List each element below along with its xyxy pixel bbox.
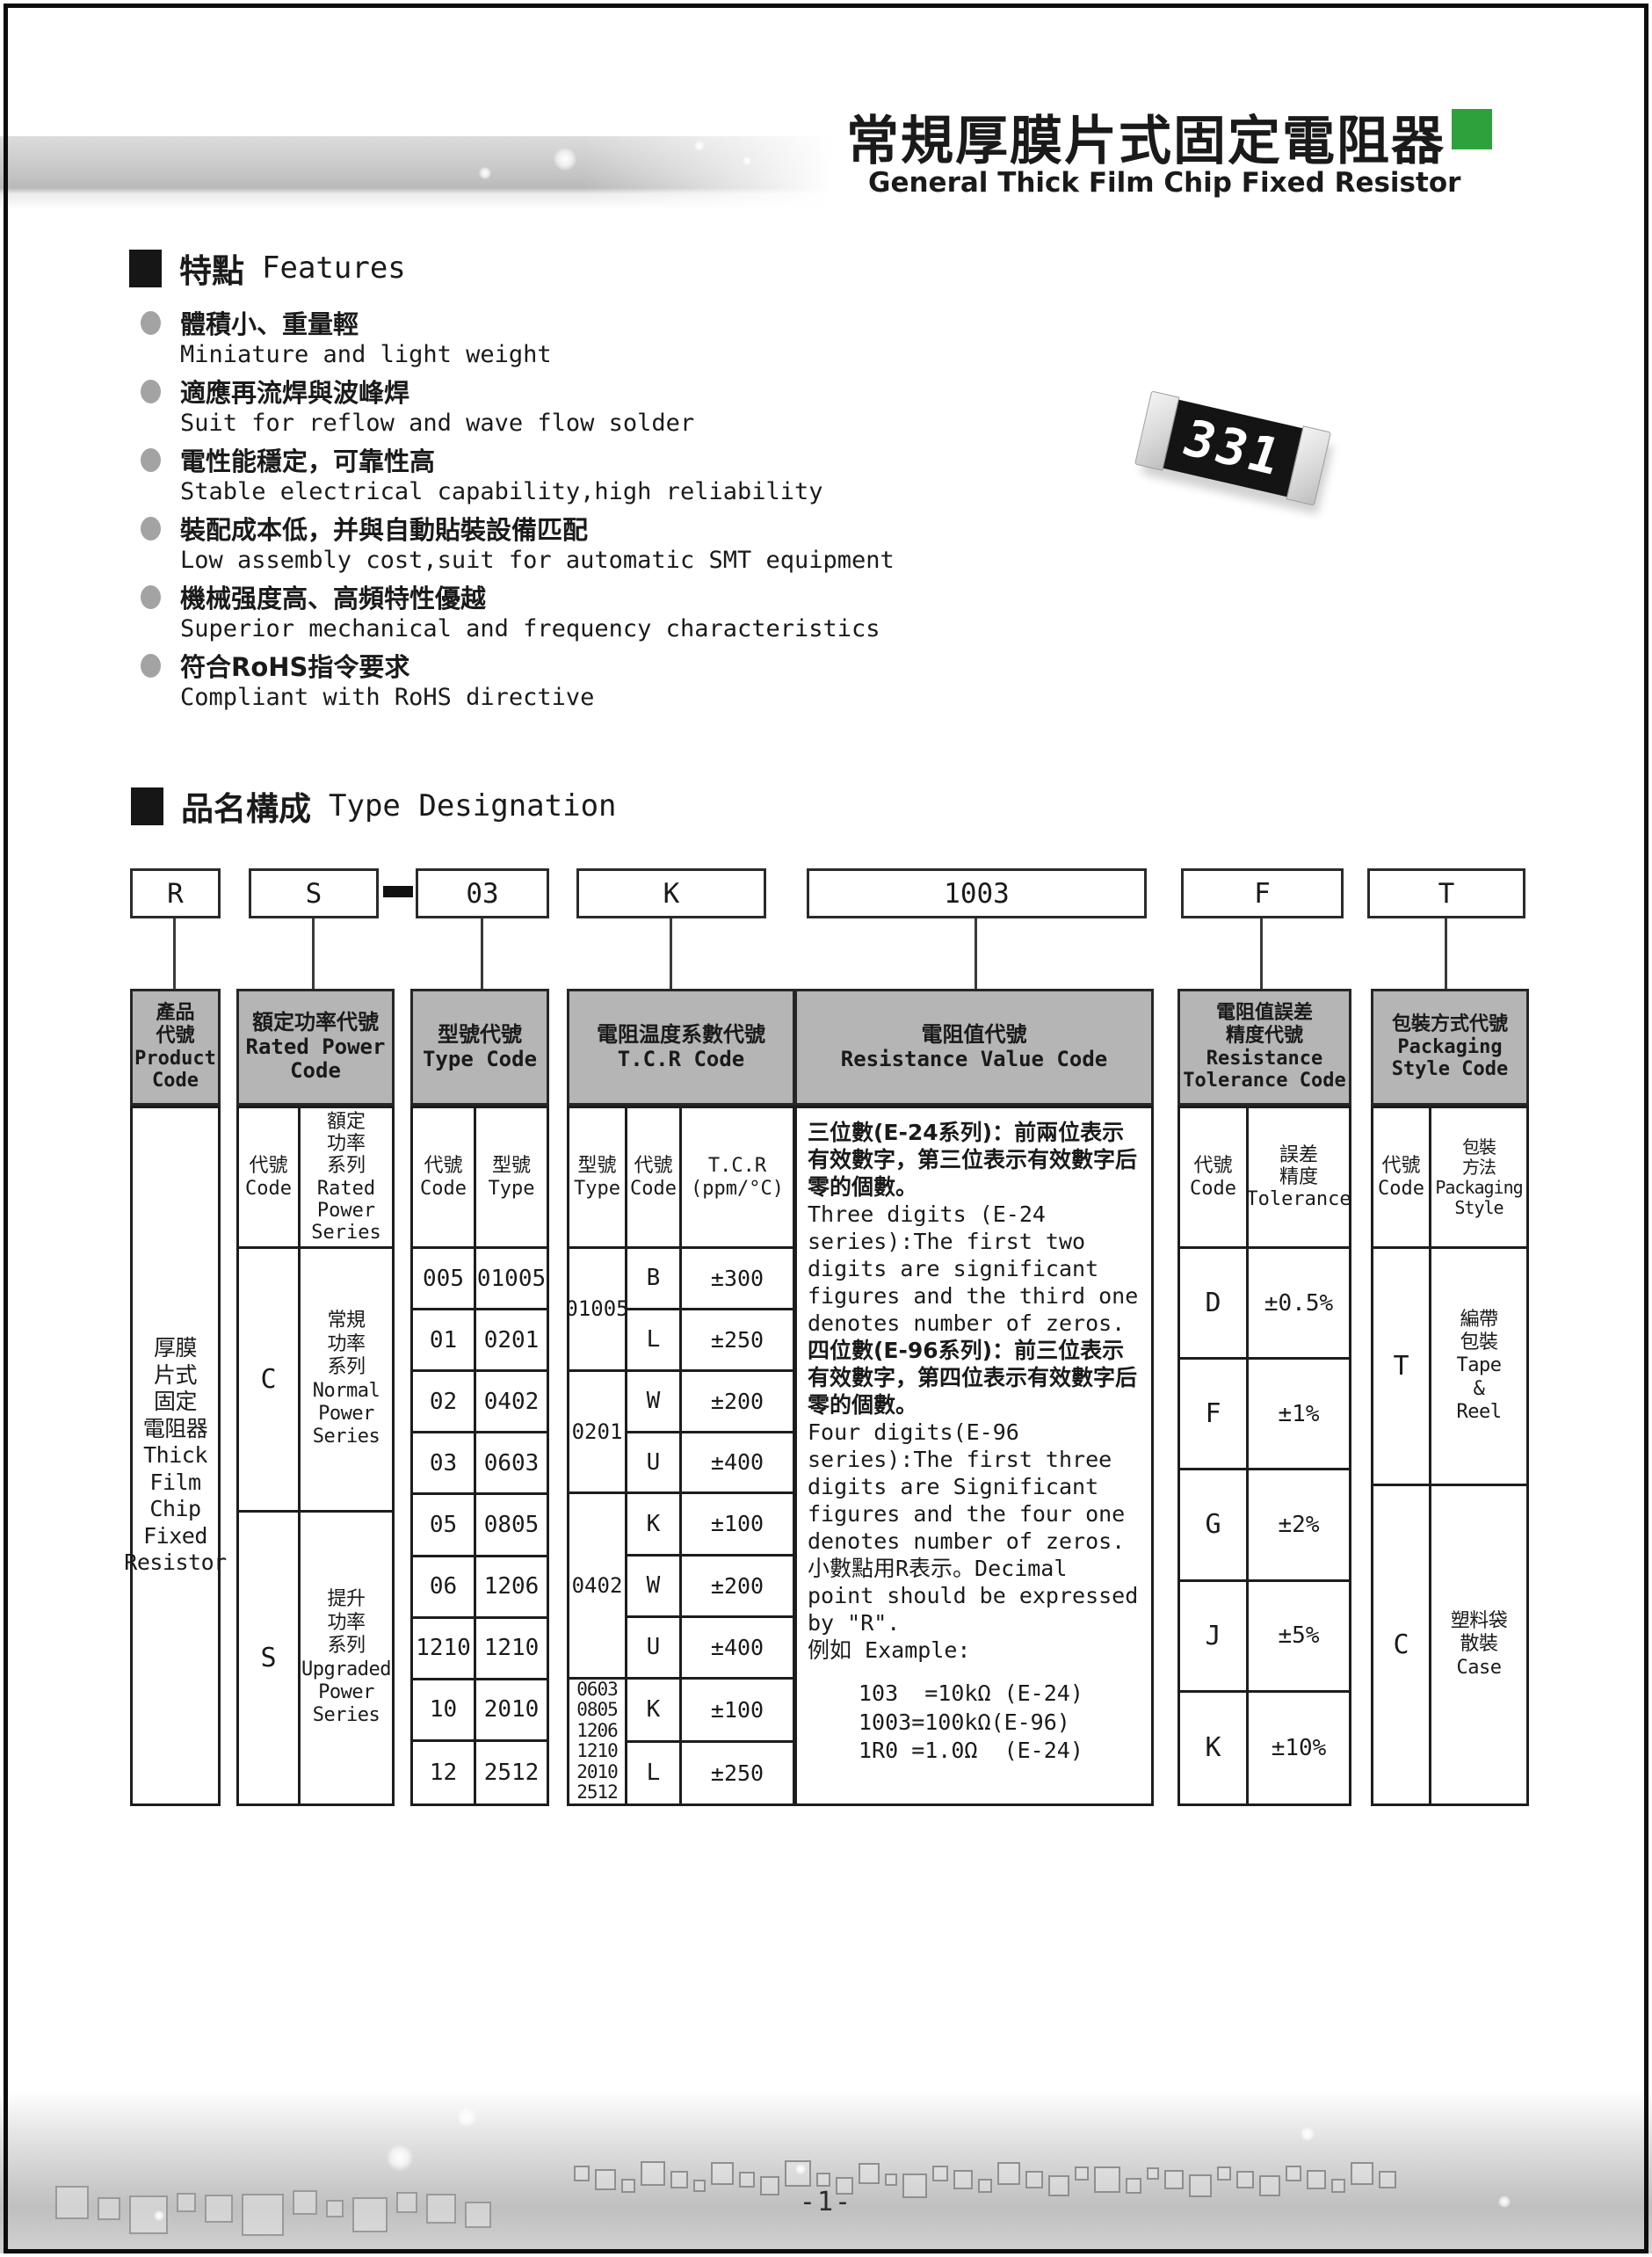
column-header-power: 額定功率代號 Rated Power Code (236, 989, 395, 1106)
deco-square (1217, 2166, 1231, 2181)
feature-en: Stable electrical capability,high reliab… (180, 478, 823, 505)
tolerance-value-cell: ±1% (1249, 1360, 1349, 1470)
tcr-type-cell: 0402 (569, 1494, 627, 1677)
deco-square (1025, 2171, 1043, 2188)
value-paragraph: 三位數(E-24系列)：前兩位表示有效數字，第三位表示有效數字后零的個數。 (808, 1119, 1144, 1201)
feature-en: Compliant with RoHS directive (180, 684, 594, 711)
sparkle-decoration (387, 2145, 413, 2171)
feature-en: Miniature and light weight (180, 341, 552, 368)
bullet-icon (141, 380, 161, 403)
tolerance-value-cell: ±2% (1249, 1470, 1349, 1581)
codebox-value: 1003 (807, 868, 1147, 918)
connector-line (1260, 918, 1263, 989)
page-number: -1- (0, 2187, 1652, 2217)
packaging-style-cell: 塑料袋 散裝 Case (1431, 1486, 1526, 1803)
feature-zh: 體積小、重量輕 (180, 304, 359, 341)
tcr-code-cell: W (627, 1372, 682, 1431)
type-size-cell: 1206 (476, 1557, 547, 1619)
table-tcr: 型號 Type 代號 Code T.C.R (ppm/°C) 01005 B±3… (567, 1106, 795, 1806)
type-size-cell: 0201 (476, 1310, 547, 1372)
bullet-icon (141, 517, 161, 541)
packaging-code-cell: T (1373, 1249, 1431, 1486)
tcr-type-cell: 0603 0805 1206 1210 2010 2512 (569, 1680, 627, 1803)
tcr-value-cell: ±100 (682, 1494, 793, 1553)
tcr-subheader-type: 型號 Type (569, 1108, 627, 1246)
tcr-value-cell: ±250 (682, 1743, 793, 1803)
packaging-style-cell: 編帶 包裝 Tape & Reel (1431, 1249, 1526, 1486)
power-subheader-series: 額定 功率 系列 Rated Power Series (301, 1108, 392, 1249)
tcr-subheader-code: 代號 Code (627, 1108, 682, 1246)
table-type: 代號 Code 型號 Type 005 01005 01 0201 02 040… (410, 1106, 549, 1806)
feature-zh: 適應再流焊與波峰焊 (180, 373, 409, 410)
deco-square (932, 2166, 948, 2181)
table-packaging: 代號 Code 包裝 方法 Packaging Style T 編帶 包裝 Ta… (1371, 1106, 1529, 1806)
column-header-tcr: 電阻温度系數代號 T.C.R Code (567, 989, 795, 1106)
type-code-cell: 005 (413, 1249, 476, 1310)
power-series-cell: 提升 功率 系列 Upgraded Power Series (301, 1513, 392, 1803)
type-code-cell: 10 (413, 1680, 476, 1742)
bullet-icon (141, 585, 161, 609)
type-code-cell: 01 (413, 1310, 476, 1372)
power-series-cell: 常規 功率 系列 Normal Power Series (301, 1249, 392, 1513)
deco-square (711, 2162, 734, 2185)
chip-marking: 331 (1134, 395, 1333, 502)
feature-zh: 裝配成本低，并與自動貼裝設備匹配 (180, 510, 588, 547)
packaging-subheader-style: 包裝 方法 Packaging Style (1431, 1108, 1526, 1249)
page-title-zh: 常規厚膜片式固定電阻器 (846, 98, 1445, 175)
column-header-type: 型號代號 Type Code (410, 989, 549, 1106)
type-code-cell: 06 (413, 1557, 476, 1619)
deco-square (574, 2166, 590, 2181)
sparkle-decoration (795, 2164, 806, 2174)
codebox-tcr: K (576, 868, 766, 918)
deco-square (670, 2171, 688, 2188)
column-header-packaging: 包裝方式代號 Packaging Style Code (1371, 989, 1529, 1106)
type-designation-heading-en: Type Designation (329, 788, 617, 824)
tolerance-code-cell: F (1180, 1360, 1249, 1470)
features-heading-zh: 特點 (179, 244, 244, 292)
type-code-cell: 02 (413, 1372, 476, 1433)
deco-square (1379, 2171, 1396, 2188)
power-subheader-code: 代號 Code (239, 1108, 301, 1249)
product-description-cell: 厚膜 片式 固定 電阻器 Thick Film Chip Fixed Resis… (133, 1108, 218, 1803)
codebox-packaging: T (1367, 868, 1525, 918)
section-marker-square (131, 787, 163, 825)
bullet-icon (141, 311, 161, 335)
tcr-value-cell: ±400 (682, 1433, 793, 1492)
header-gradient-band-fade (0, 136, 833, 210)
deco-square (739, 2172, 755, 2188)
feature-zh: 電性能穩定，可靠性高 (180, 441, 435, 478)
table-tolerance: 代號 Code 誤差 精度 Tolerance D ±0.5% F ±1% G … (1177, 1106, 1351, 1806)
brand-green-square (1452, 109, 1492, 149)
bullet-icon (141, 654, 161, 678)
tcr-code-cell: K (627, 1680, 682, 1740)
type-subheader-code: 代號 Code (413, 1108, 476, 1249)
type-subheader-type: 型號 Type (476, 1108, 547, 1249)
type-size-cell: 2010 (476, 1680, 547, 1742)
power-code-cell: C (239, 1249, 301, 1513)
feature-zh: 機械强度高、高頻特性優越 (180, 578, 486, 615)
tcr-group: 01005 B±300 L±250 (569, 1249, 793, 1372)
sparkle-decoration (1301, 2127, 1315, 2141)
tcr-code-cell: B (627, 1249, 682, 1308)
tolerance-code-cell: K (1180, 1693, 1249, 1803)
value-paragraph: Four digits(E-96 series):The first three… (808, 1419, 1144, 1555)
connector-line (670, 918, 672, 989)
tcr-code-cell: L (627, 1743, 682, 1803)
type-size-cell: 0805 (476, 1495, 547, 1557)
value-paragraph: 小數點用R表示。Decimal point should be expresse… (808, 1555, 1144, 1637)
feature-en: Low assembly cost,suit for automatic SMT… (180, 547, 895, 574)
deco-square (1351, 2162, 1373, 2185)
feature-item: 體積小、重量輕 (141, 304, 359, 341)
tcr-value-cell: ±200 (682, 1372, 793, 1431)
type-size-cell: 1210 (476, 1619, 547, 1680)
column-header-product: 產品 代號 Product Code (130, 989, 221, 1106)
codebox-dash (383, 886, 413, 897)
tcr-type-cell: 01005 (569, 1249, 627, 1369)
sparkle-decoration (554, 148, 576, 171)
connector-line (975, 918, 977, 989)
tcr-value-cell: ±400 (682, 1618, 793, 1677)
type-size-cell: 2512 (476, 1742, 547, 1803)
sparkle-decoration (694, 141, 705, 151)
deco-square (1075, 2166, 1089, 2181)
type-size-cell: 01005 (476, 1249, 547, 1310)
type-designation-heading: 品名構成 Type Designation (131, 782, 617, 830)
value-paragraph: 例如 Example: (808, 1637, 1144, 1664)
tcr-code-cell: K (627, 1494, 682, 1553)
tolerance-value-cell: ±5% (1249, 1582, 1349, 1693)
connector-line (481, 918, 483, 989)
deco-square (885, 2174, 897, 2186)
feature-en: Suit for reflow and wave flow solder (180, 410, 694, 437)
codebox-product: R (130, 868, 221, 918)
deco-square (641, 2161, 665, 2186)
deco-square (1147, 2167, 1159, 2180)
feature-item: 適應再流焊與波峰焊 (141, 373, 409, 410)
value-paragraph: Three digits (E-24 series):The first two… (808, 1201, 1144, 1337)
codebox-tolerance: F (1181, 868, 1344, 918)
tcr-value-cell: ±100 (682, 1680, 793, 1740)
feature-item: 電性能穩定，可靠性高 (141, 441, 435, 478)
feature-item: 裝配成本低，并與自動貼裝設備匹配 (141, 510, 588, 547)
features-heading-en: Features (262, 250, 406, 286)
deco-square (997, 2162, 1020, 2185)
type-code-cell: 05 (413, 1495, 476, 1557)
value-example: 1R0 =1.0Ω (E-24) (859, 1737, 1144, 1766)
tcr-subheader-value: T.C.R (ppm/°C) (682, 1108, 793, 1246)
column-header-value: 電阻值代號 Resistance Value Code (794, 989, 1154, 1106)
feature-zh: 符合RoHS指令要求 (180, 647, 409, 684)
value-example: 1003=100kΩ(E-96) (859, 1709, 1144, 1738)
codebox-type: 03 (416, 868, 549, 918)
tolerance-subheader-code: 代號 Code (1180, 1108, 1249, 1249)
tcr-code-cell: U (627, 1433, 682, 1492)
value-paragraph: 四位數(E-96系列)：前三位表示有效數字，第四位表示有效數字后零的個數。 (808, 1337, 1144, 1419)
tolerance-value-cell: ±0.5% (1249, 1249, 1349, 1360)
tcr-value-cell: ±200 (682, 1557, 793, 1615)
deco-square (1236, 2171, 1254, 2188)
section-marker-square (129, 250, 162, 287)
connector-line (312, 918, 315, 989)
feature-item: 符合RoHS指令要求 (141, 647, 409, 684)
type-size-cell: 0402 (476, 1372, 547, 1433)
connector-line (1445, 918, 1447, 989)
table-power: 代號 Code 額定 功率 系列 Rated Power Series C 常規… (236, 1106, 395, 1806)
table-product: 厚膜 片式 固定 電阻器 Thick Film Chip Fixed Resis… (130, 1106, 221, 1806)
feature-item: 機械强度高、高頻特性優越 (141, 578, 486, 615)
connector-line (173, 918, 176, 989)
feature-en: Superior mechanical and frequency charac… (180, 615, 880, 642)
codebox-power: S (249, 868, 379, 918)
deco-square (816, 2173, 830, 2187)
deco-square (859, 2163, 880, 2184)
power-code-cell: S (239, 1513, 301, 1803)
resistor-chip-image: 331 (1137, 394, 1330, 503)
tcr-group: 0201 W±200 U±400 (569, 1372, 793, 1495)
tcr-code-cell: L (627, 1310, 682, 1369)
tcr-code-cell: W (627, 1557, 682, 1615)
deco-square (1286, 2166, 1301, 2181)
tcr-group: 0402 K±100 W±200 U±400 (569, 1494, 793, 1680)
tolerance-code-cell: D (1180, 1249, 1249, 1360)
page-title-en: General Thick Film Chip Fixed Resistor (868, 167, 1460, 199)
table-value: 三位數(E-24系列)：前兩位表示有效數字，第三位表示有效數字后零的個數。 Th… (794, 1106, 1154, 1806)
type-size-cell: 0603 (476, 1433, 547, 1495)
tolerance-code-cell: J (1180, 1582, 1249, 1693)
tcr-type-cell: 0201 (569, 1372, 627, 1492)
value-example: 103 =10kΩ (E-24) (859, 1680, 1144, 1709)
datasheet-page: { "page": { "title_zh": "常規厚膜片式固定電阻器", "… (0, 0, 1652, 2257)
tcr-value-cell: ±250 (682, 1310, 793, 1369)
tolerance-value-cell: ±10% (1249, 1693, 1349, 1803)
type-code-cell: 03 (413, 1433, 476, 1495)
tolerance-code-cell: G (1180, 1470, 1249, 1581)
packaging-subheader-code: 代號 Code (1373, 1108, 1431, 1249)
sparkle-decoration (479, 167, 491, 179)
column-header-tolerance: 電阻值誤差 精度代號 Resistance Tolerance Code (1177, 989, 1351, 1106)
type-designation-heading-zh: 品名構成 (181, 782, 311, 830)
type-code-cell: 1210 (413, 1619, 476, 1680)
type-code-cell: 12 (413, 1742, 476, 1803)
tolerance-subheader-tol: 誤差 精度 Tolerance (1249, 1108, 1349, 1249)
tcr-code-cell: U (627, 1618, 682, 1677)
packaging-code-cell: C (1373, 1486, 1431, 1803)
tcr-value-cell: ±300 (682, 1249, 793, 1308)
features-section-heading: 特點 Features (129, 244, 406, 292)
tcr-group: 0603 0805 1206 1210 2010 2512 K±100 L±25… (569, 1680, 793, 1803)
sparkle-decoration (743, 156, 751, 165)
sparkle-decoration (457, 2108, 476, 2127)
bullet-icon (141, 448, 161, 472)
